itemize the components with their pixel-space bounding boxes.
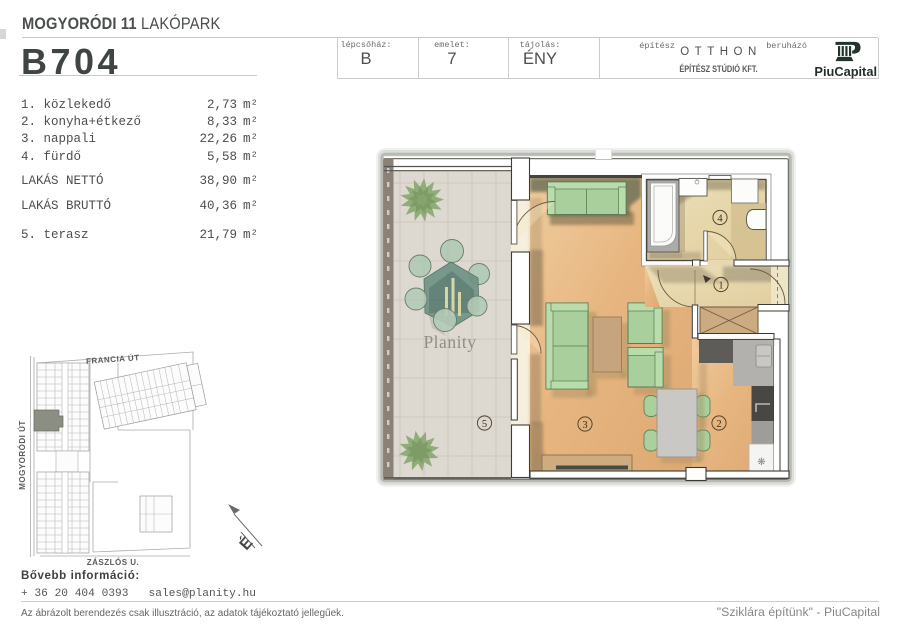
svg-text:MOGYORÓDI ÚT: MOGYORÓDI ÚT <box>18 420 27 490</box>
svg-text:FRANCIA ÚT: FRANCIA ÚT <box>86 353 140 366</box>
svg-text:❋: ❋ <box>757 457 765 468</box>
svg-text:4: 4 <box>717 214 723 225</box>
svg-text:2: 2 <box>716 419 721 430</box>
svg-text:Planity: Planity <box>423 332 476 352</box>
svg-text:1: 1 <box>718 281 723 292</box>
svg-text:3: 3 <box>582 420 587 431</box>
svg-text:ZÁSZLÓS U.: ZÁSZLÓS U. <box>87 558 140 567</box>
svg-text:5: 5 <box>482 419 487 430</box>
